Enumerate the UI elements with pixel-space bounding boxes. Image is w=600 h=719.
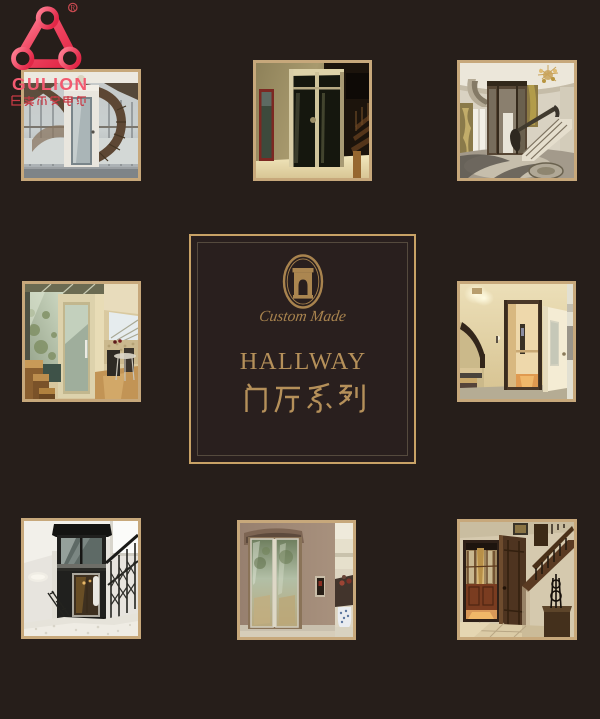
svg-text:R: R bbox=[70, 3, 76, 12]
